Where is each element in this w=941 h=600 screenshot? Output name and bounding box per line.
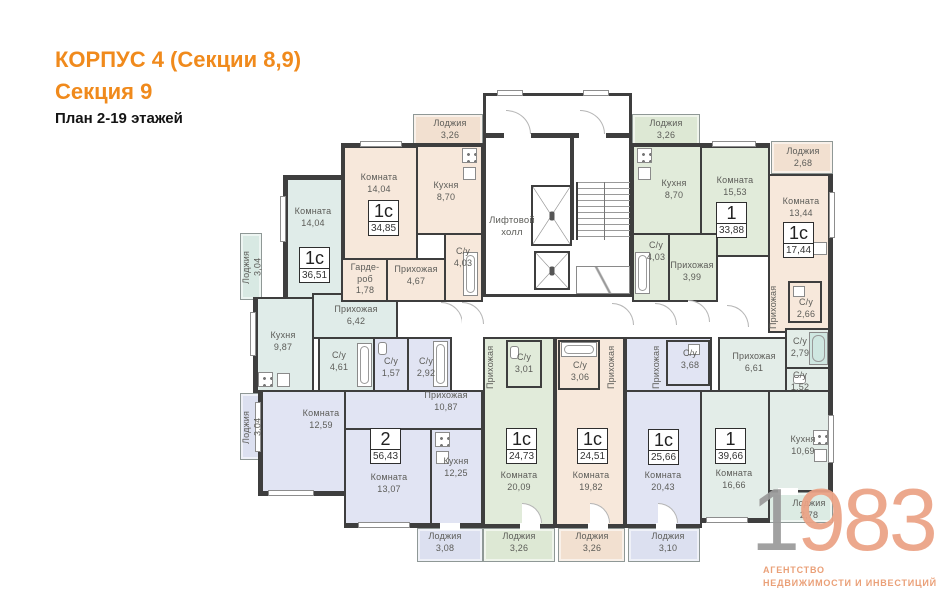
label-su: С/у2,66 [790, 297, 822, 320]
label-lodge: Лоджия3,26 [636, 118, 696, 141]
apartment-badge-24-51: 1с24,51 [577, 428, 608, 464]
label-komnata: Комната20,09 [488, 470, 550, 493]
label-su: С/у4,03 [446, 246, 480, 269]
label-su: С/у1,52 [787, 370, 813, 393]
label-komnata: Комната13,07 [358, 472, 420, 495]
balcony-door-gap [440, 523, 460, 530]
door-arc [688, 300, 710, 322]
staircase [576, 182, 630, 240]
label-prihozhaya: Прихожая6,42 [320, 304, 392, 327]
balcony-door-gap [520, 523, 540, 530]
label-prihozhaya: Прихожая4,67 [388, 264, 444, 287]
label-lodge: Лоджия3,26 [491, 531, 547, 554]
door-arc [441, 302, 463, 324]
label-lodge: Лоджия2,68 [777, 146, 829, 169]
label-garderob: Гарде-роб1,78 [347, 262, 383, 297]
label-komnata: Комната13,44 [770, 196, 832, 219]
label-prihozhaya: Прихожая [768, 282, 784, 332]
logo-digit-1: 1 [751, 470, 797, 569]
sink-icon [812, 242, 827, 255]
apartment-badge-36-51: 1с36,51 [299, 247, 330, 283]
toilet-icon [378, 342, 387, 355]
logo-digits-983: 983 [797, 470, 935, 569]
label-lodge: Лоджия3,04 [241, 238, 261, 296]
label-prihozhaya: Прихожая3,99 [666, 260, 718, 283]
label-lodge: Лоджия3,08 [420, 531, 470, 554]
agency-line2: НЕДВИЖИМОСТИ И ИНВЕСТИЦИЙ [763, 577, 937, 591]
label-lodge: Лоджия3,10 [640, 531, 696, 554]
label-lift-hall: Лифтовой холл [487, 215, 537, 240]
label-komnata: Комната20,43 [632, 470, 694, 493]
elevator-large [531, 185, 572, 246]
label-prihozhaya: Прихожая [606, 340, 622, 395]
apartment-badge-25-66: 1с25,66 [648, 429, 679, 465]
building-title: КОРПУС 4 (Секции 8,9) [55, 44, 301, 76]
apartment-badge-17-44: 1с17,44 [783, 222, 814, 258]
label-komnata: Комната19,82 [560, 470, 622, 493]
apartment-badge-39-66: 139,66 [715, 428, 746, 464]
label-lodge: Лоджия3,26 [564, 531, 620, 554]
label-su: С/у1,57 [376, 356, 406, 379]
label-lodge: Лоджия3,04 [241, 398, 261, 456]
balcony-door-gap [656, 523, 676, 530]
apartment-badge-34-85: 1с34,85 [368, 200, 399, 236]
window [358, 522, 410, 528]
agency-logo: 1983 АГЕНТСТВО НЕДВИЖИМОСТИ И ИНВЕСТИЦИЙ [751, 478, 937, 591]
label-su: С/у4,61 [322, 350, 356, 373]
stove-icon [462, 148, 477, 163]
stove-icon [637, 148, 652, 163]
label-kuhnya: Кухня8,70 [418, 180, 474, 203]
stove-icon [435, 432, 450, 447]
window [583, 90, 609, 96]
sink-icon [793, 286, 805, 297]
window [497, 90, 523, 96]
window [712, 141, 756, 147]
label-su: С/у2,79 [787, 336, 813, 359]
bathtub-icon [357, 343, 372, 387]
label-komnata: Комната14,04 [342, 172, 416, 195]
window [360, 141, 402, 147]
label-su: С/у3,68 [674, 348, 706, 371]
label-kuhnya: Кухня9,87 [255, 330, 311, 353]
label-kuhnya: Кухня12,25 [432, 456, 480, 479]
label-kuhnya: Кухня10,69 [780, 434, 826, 457]
window [828, 415, 834, 463]
floorplan-page: КОРПУС 4 (Секции 8,9) Секция 9 План 2-19… [0, 0, 941, 600]
stove-icon [258, 372, 273, 387]
section-title: Секция 9 [55, 76, 301, 108]
door-arc [612, 303, 634, 325]
door-arc [655, 303, 677, 325]
bathtub-icon [561, 342, 597, 357]
label-komnata: Комната14,04 [283, 206, 343, 229]
door-arc [727, 305, 749, 327]
room-komnata-12-59 [258, 390, 346, 496]
label-lodge: Лоджия3,26 [420, 118, 480, 141]
window [268, 490, 314, 496]
window [706, 517, 748, 523]
sink-icon [277, 373, 290, 387]
label-prihozhaya: Прихожая6,61 [728, 351, 780, 374]
floors-subtitle: План 2-19 этажей [55, 110, 301, 127]
door-arc [462, 302, 484, 324]
elevator-small [534, 251, 570, 290]
label-komnata: Комната15,53 [702, 175, 768, 198]
label-su: С/у3,01 [508, 352, 540, 375]
plan-title: КОРПУС 4 (Секции 8,9) Секция 9 План 2-19… [55, 44, 301, 127]
label-prihozhaya: Прихожая10,87 [418, 390, 474, 413]
sink-icon [463, 167, 476, 180]
balcony-door-gap [588, 523, 608, 530]
stair-ramp [576, 266, 630, 294]
label-su: С/у3,06 [562, 360, 598, 383]
label-su: С/у2,92 [410, 356, 442, 379]
apartment-badge-24-73: 1с24,73 [506, 428, 537, 464]
label-prihozhaya: Прихожая [651, 340, 667, 395]
label-kuhnya: Кухня8,70 [648, 178, 700, 201]
logo-1983: 1983 [751, 478, 937, 562]
apartment-badge-33-88: 133,88 [716, 202, 747, 238]
label-komnata: Комната12,59 [290, 408, 352, 431]
apartment-badge-56-43: 256,43 [370, 428, 401, 464]
room-komnata-36-51 [283, 175, 343, 302]
label-prihozhaya: Прихожая [485, 340, 501, 395]
